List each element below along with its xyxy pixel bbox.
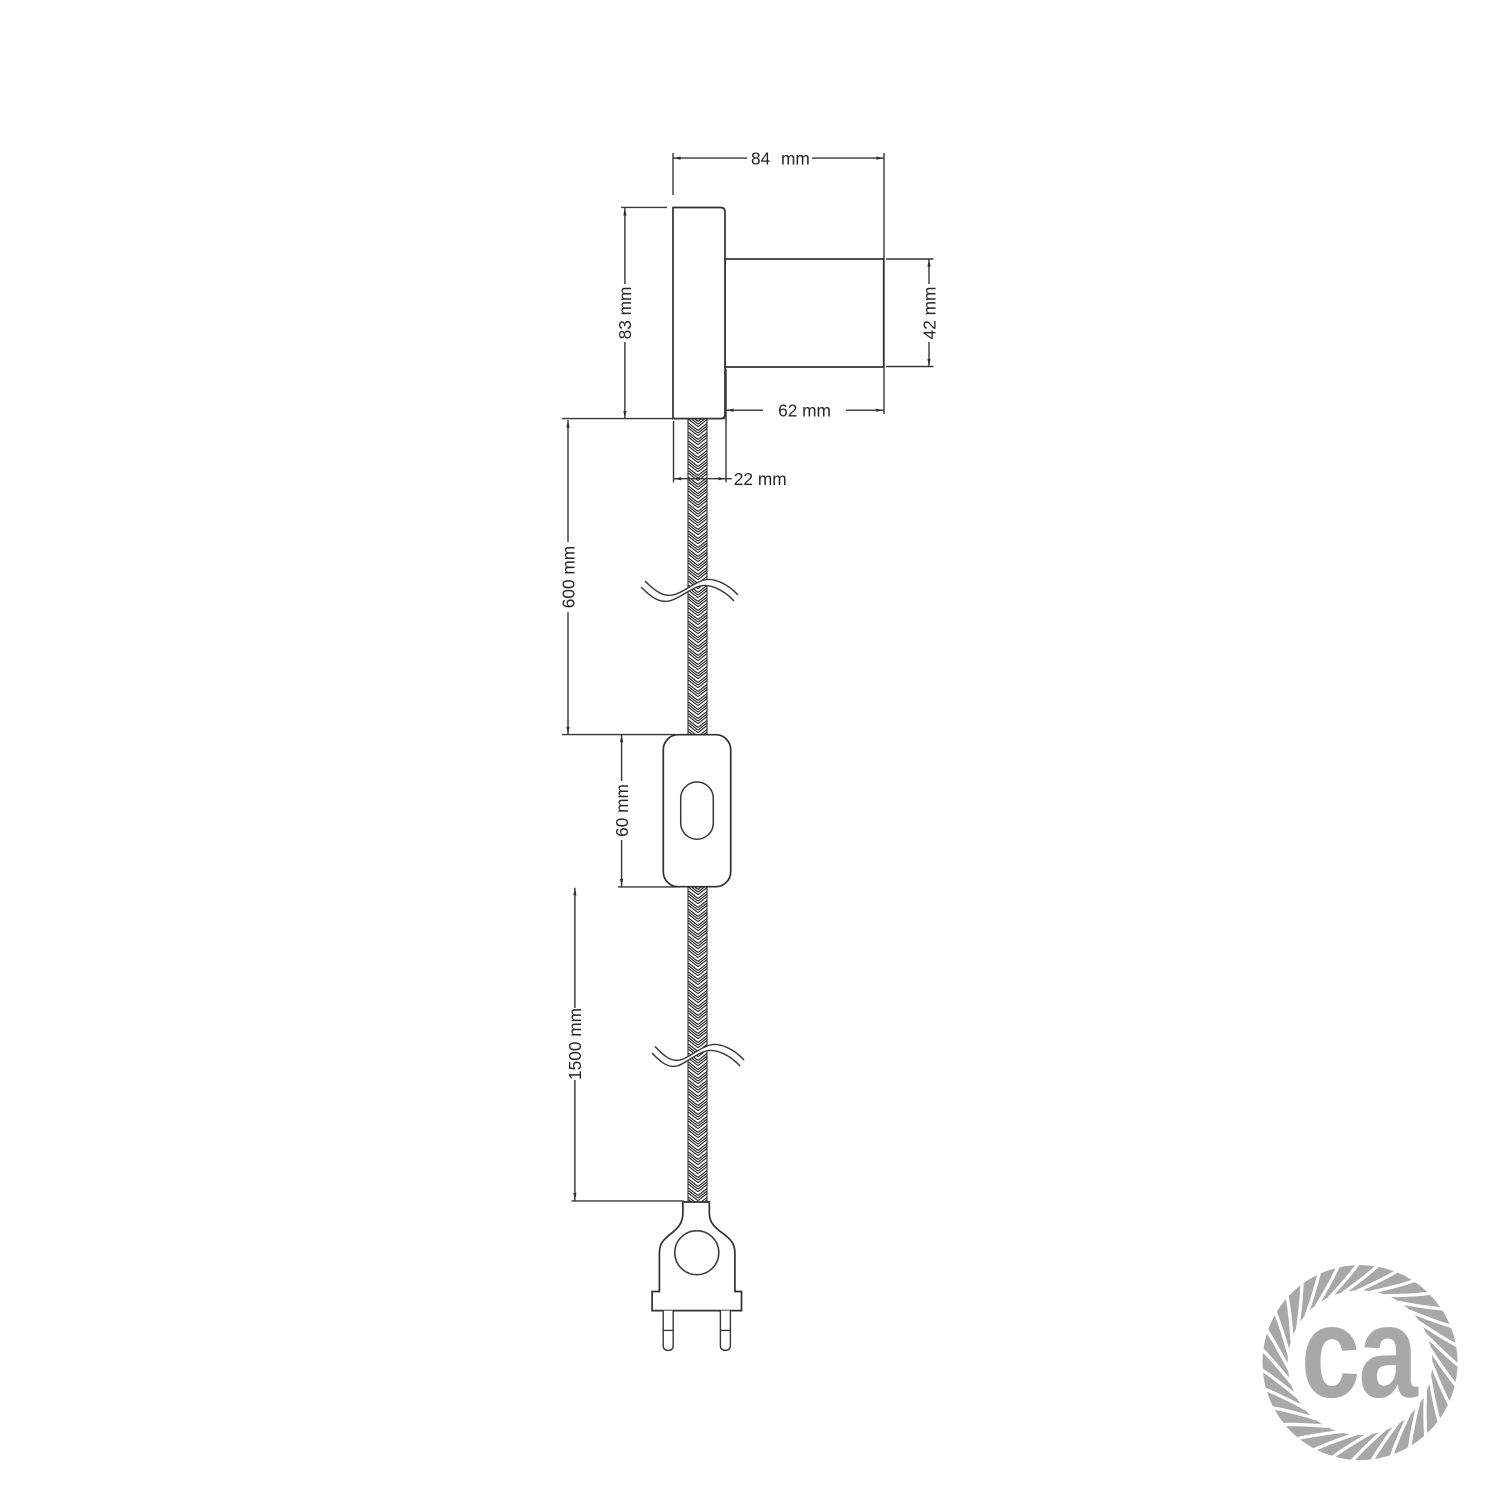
svg-text:mm: mm: [781, 148, 810, 168]
svg-text:22 mm: 22 mm: [734, 469, 787, 489]
svg-text:84: 84: [751, 148, 771, 168]
svg-text:600 mm: 600 mm: [558, 546, 578, 608]
svg-text:60 mm: 60 mm: [612, 784, 632, 837]
svg-text:62 mm: 62 mm: [778, 401, 831, 421]
svg-text:83 mm: 83 mm: [615, 287, 635, 340]
svg-text:ca: ca: [1301, 1280, 1419, 1425]
svg-text:1500 mm: 1500 mm: [565, 1008, 585, 1080]
svg-text:42 mm: 42 mm: [919, 287, 939, 340]
